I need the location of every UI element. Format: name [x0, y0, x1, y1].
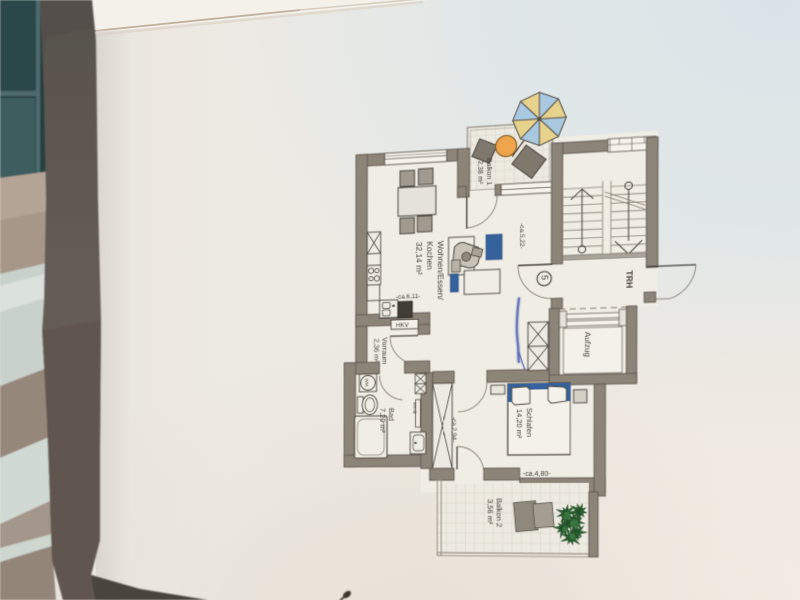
svg-text:32,14 m²: 32,14 m² — [414, 242, 424, 276]
svg-text:Balkon 1: Balkon 1 — [485, 158, 493, 186]
svg-text:TRH: TRH — [624, 270, 635, 288]
svg-text:14,20 m²: 14,20 m² — [514, 409, 522, 440]
svg-text:2,36 m²: 2,36 m² — [372, 339, 380, 363]
svg-text:HKV: HKV — [396, 322, 409, 329]
svg-text:Wohnen/Essen/: Wohnen/Essen/ — [435, 241, 445, 301]
svg-text:3,56 m²: 3,56 m² — [485, 499, 493, 525]
svg-text:Kochen: Kochen — [425, 241, 435, 270]
svg-text:Schlafen: Schlafen — [525, 408, 533, 438]
svg-text:Vorraum: Vorraum — [380, 337, 388, 364]
svg-text:HK-B: HK-B — [412, 403, 418, 415]
svg-text:-ca.6,11-: -ca.6,11- — [396, 294, 420, 302]
svg-text:WM: WM — [364, 378, 369, 387]
svg-text:Balkon 2: Balkon 2 — [494, 498, 502, 527]
svg-text:-ca.4,80-: -ca.4,80- — [523, 470, 551, 478]
svg-text:2,38 m²: 2,38 m² — [476, 160, 484, 184]
svg-text:Aufzug: Aufzug — [583, 332, 591, 358]
svg-text:Bad: Bad — [387, 408, 395, 422]
svg-text:-ca.5,22-: -ca.5,22- — [518, 223, 525, 249]
svg-text:7,20 m²: 7,20 m² — [378, 408, 386, 434]
svg-text:-ca.2,94-: -ca.2,94- — [450, 417, 457, 443]
